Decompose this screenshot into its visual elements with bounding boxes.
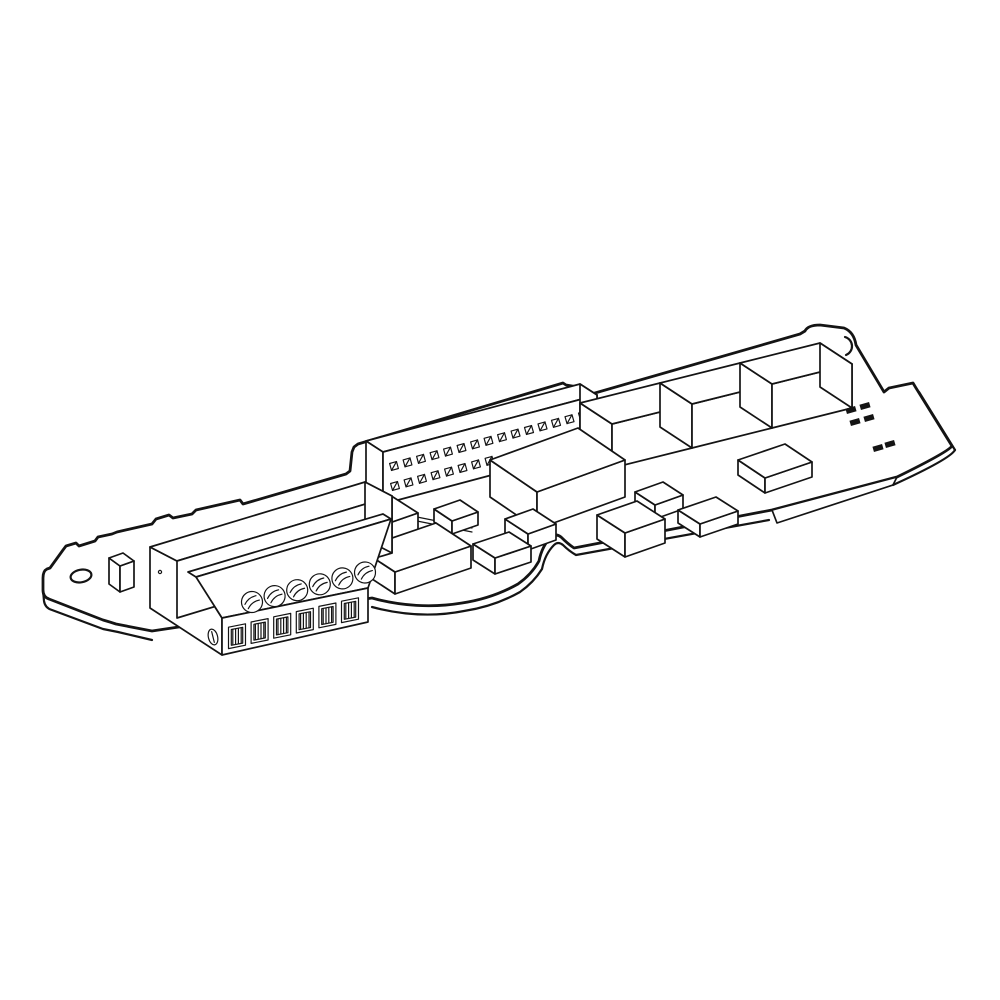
pin-row-top-pin — [457, 444, 466, 453]
pin-row-top-pin — [390, 462, 399, 471]
wire-opening — [319, 603, 336, 628]
pin-row-bottom-pin — [431, 471, 440, 480]
pin-row-top-pin — [538, 422, 547, 431]
pin-row-bottom-pin — [472, 460, 481, 469]
pin-row-bottom-pin — [445, 467, 454, 476]
pcb-option-card-drawing — [0, 0, 1000, 1000]
pin-row-top-pin — [525, 426, 534, 435]
wire-opening — [251, 619, 268, 644]
wire-opening — [229, 624, 246, 649]
pin-row-top-pin — [552, 418, 561, 427]
pin-row-top-pin — [498, 433, 507, 442]
pin-row-bottom-pin — [458, 464, 467, 473]
pin-row-top-pin — [430, 451, 439, 460]
wire-opening — [342, 598, 359, 623]
pin-row-top-pin — [471, 440, 480, 449]
pin-row-bottom-pin — [404, 478, 413, 487]
pin-row-bottom-pin — [418, 474, 427, 483]
pin-row-top-pin — [417, 454, 426, 463]
pin-row-top-pin — [403, 458, 412, 467]
pin-row-top-pin — [444, 447, 453, 456]
wire-opening — [296, 608, 313, 633]
pin-row-top-pin — [511, 429, 520, 438]
pin-row-bottom-pin — [391, 482, 400, 491]
component-left-step — [109, 553, 134, 592]
pin-row-top-pin — [484, 436, 493, 445]
pin-row-top-pin — [565, 415, 574, 424]
wire-opening — [274, 613, 291, 638]
pcb-line-drawing-canvas — [0, 0, 1000, 1000]
